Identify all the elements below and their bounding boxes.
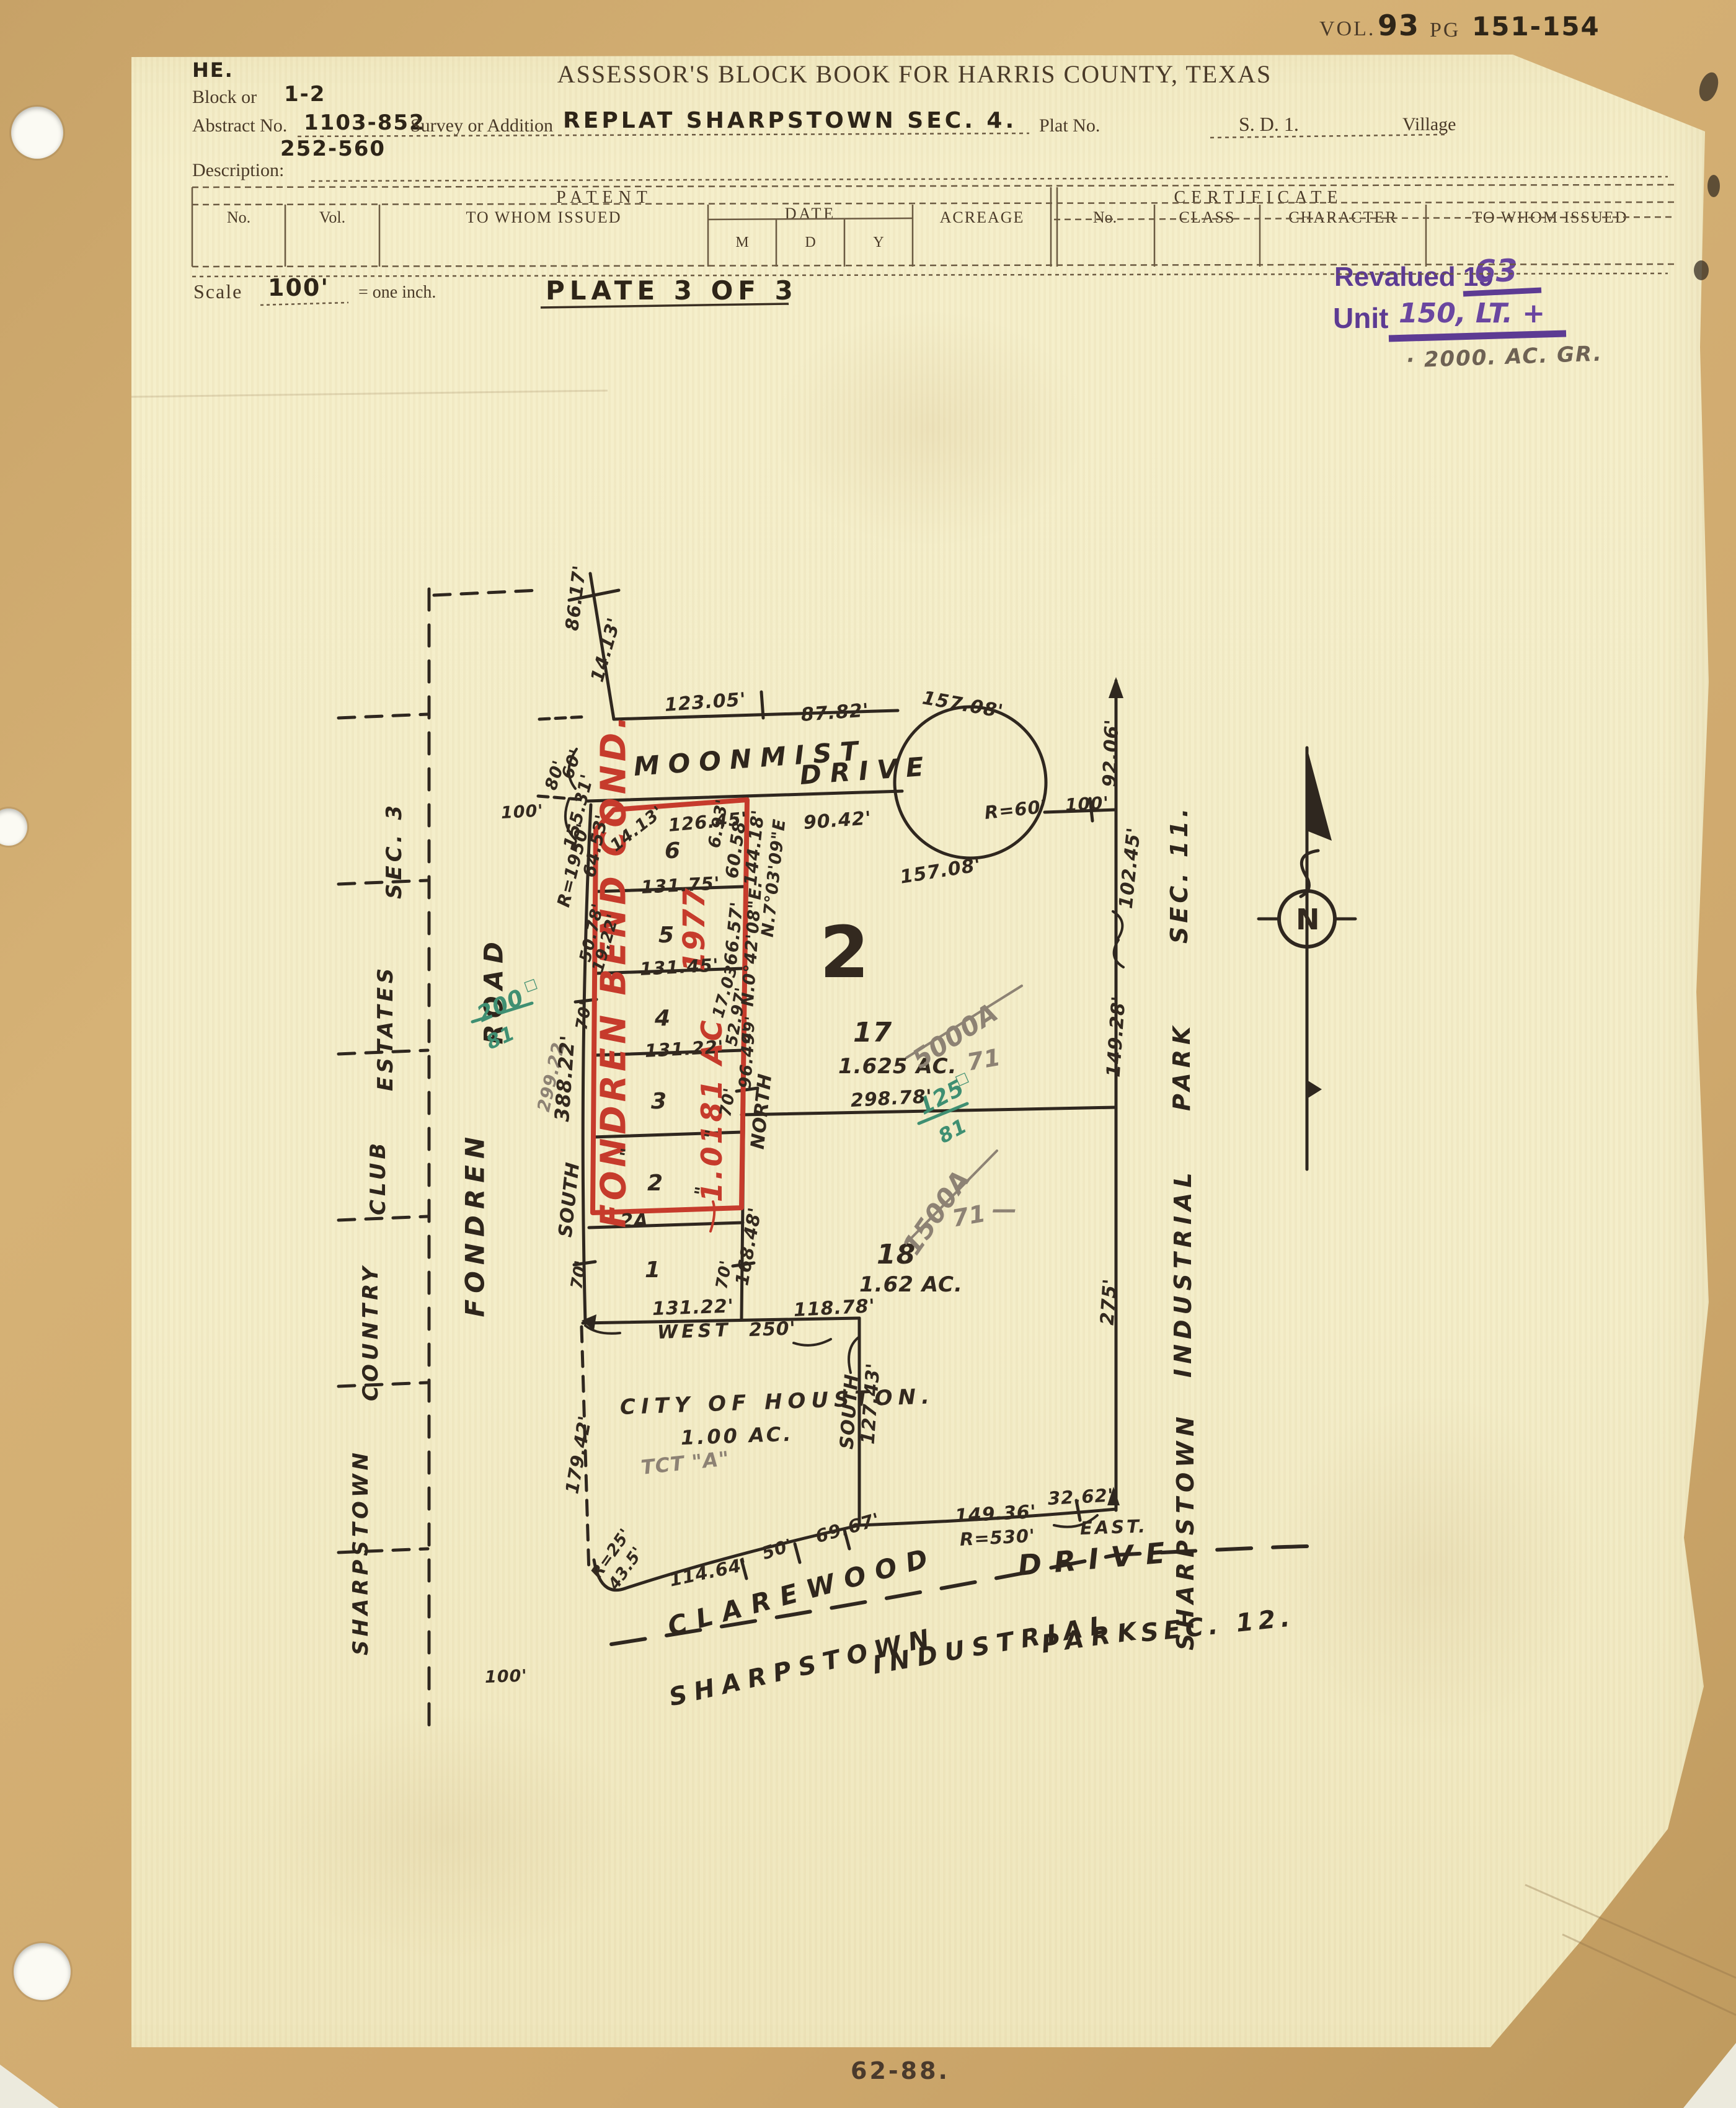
dimension-label: 92.06'	[1099, 719, 1123, 787]
subdivision-estates3-club: CLUB	[366, 1140, 391, 1215]
compass-north-label: N	[1296, 903, 1321, 936]
subdivision-park11-park: PARK	[1168, 1022, 1195, 1111]
dimension-label: 131.22'	[644, 1036, 724, 1061]
lot18-acreage: 1.62 AC.	[859, 1272, 963, 1297]
footer-stamp: 62-88.	[851, 2057, 950, 2084]
dimension-label: 250'	[748, 1317, 796, 1341]
lot-number-1: 1	[645, 1257, 661, 1283]
subdivision-estates3-sharpstown: SHARPSTOWN	[348, 1449, 373, 1655]
dimension-label: 275'	[1097, 1278, 1122, 1326]
table-rules	[192, 133, 1674, 308]
lot17-number: 17	[853, 1017, 892, 1048]
subdivision-park11-industrial: INDUSTRIAL	[1169, 1167, 1197, 1378]
ink-blots	[1694, 70, 1722, 280]
dimension-label: 131.45'	[639, 954, 719, 980]
lot-number-5: 5	[658, 923, 675, 948]
lot-number-6: 6	[665, 838, 681, 864]
compass-icon	[1259, 748, 1355, 1169]
dimension-label: 298.78'	[850, 1086, 933, 1112]
dimension-label: 131.22'	[652, 1295, 734, 1320]
subdivision-estates3-estates: ESTATES	[373, 965, 398, 1091]
pencil-note-71-b: 71	[950, 1200, 988, 1233]
lot-number-3: 3	[651, 1089, 667, 1114]
subdivision-estates3-country: COUNTRY	[358, 1263, 383, 1401]
subdivision-estates3-sec: SEC. 3	[382, 802, 407, 899]
stamp-underlines	[1389, 290, 1566, 339]
pencil-note-71: 71	[965, 1043, 1003, 1076]
dimension-label: 100'	[1065, 792, 1110, 815]
dimension-label: 131.75'	[640, 872, 720, 898]
block-number: 2	[820, 911, 870, 994]
subdivision-park11-sec: SEC. 11.	[1166, 805, 1193, 944]
curve-radius-label: R=530'	[959, 1525, 1036, 1550]
lot-number-2: 2	[647, 1171, 663, 1196]
city-parcel-acreage: 1.00 AC.	[680, 1422, 794, 1450]
street-name-fondren: FONDREN	[460, 1131, 490, 1317]
dimension-label: 118.78'	[793, 1295, 876, 1321]
dimension-label: 149.36'	[954, 1501, 1037, 1527]
punch-hole	[11, 107, 63, 159]
direction-label-west: WEST	[657, 1319, 732, 1344]
pencil-note-dash: —	[992, 1195, 1017, 1224]
dimension-label: 100'	[484, 1667, 528, 1687]
dimension-label: 32.62'	[1047, 1484, 1114, 1509]
scanned-assessor-page: { "page": { "vol_label": "VOL.", "vol_va…	[0, 0, 1736, 2108]
direction-label-east: EAST.	[1079, 1515, 1148, 1539]
dimension-label: 100'	[500, 801, 544, 823]
punch-hole	[14, 1943, 71, 2000]
lot-number-4: 4	[655, 1006, 671, 1031]
